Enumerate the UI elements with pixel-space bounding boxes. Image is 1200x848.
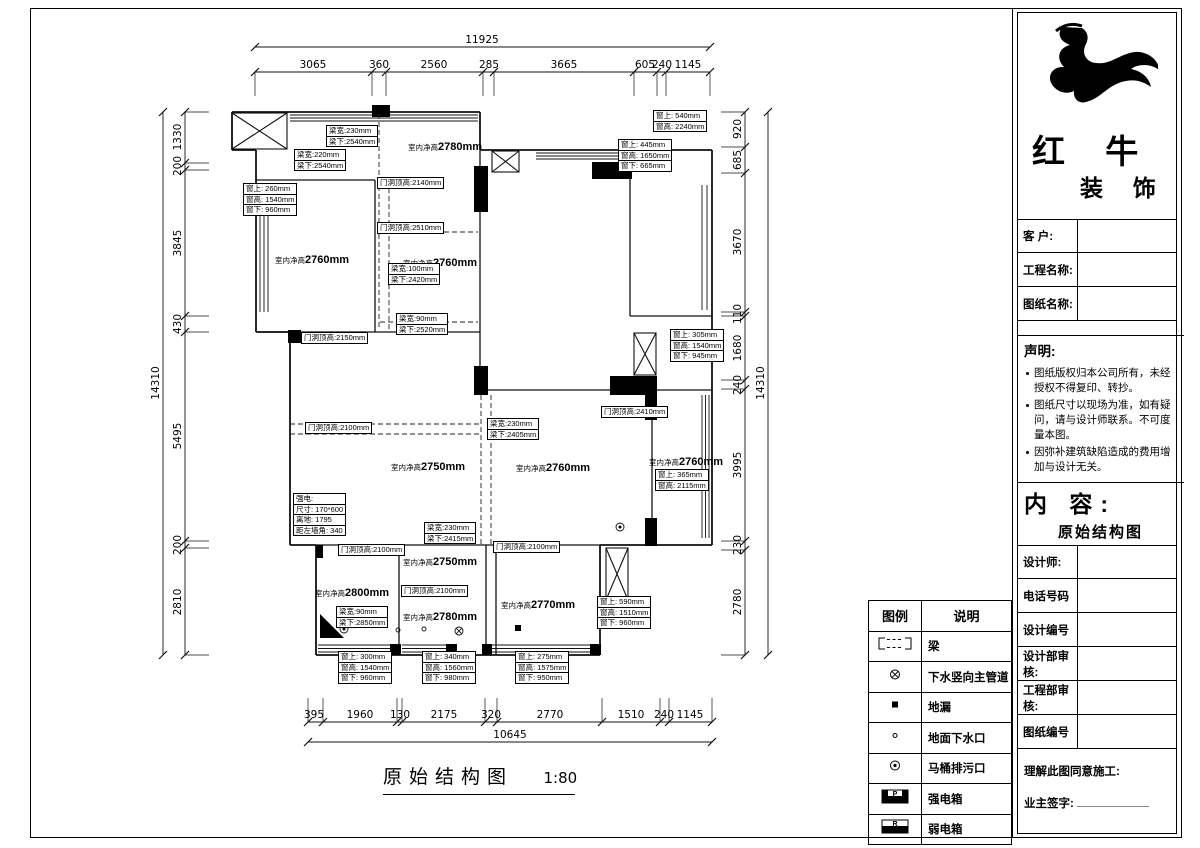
row-label: 设计部审核: <box>1018 647 1078 680</box>
dimension-label: 3065 <box>300 59 327 71</box>
dimension-label: 110 <box>732 304 744 324</box>
content-block: 内 容: 原始结构图 <box>1018 481 1176 546</box>
title-block-row: 工程名称: <box>1018 253 1176 287</box>
floor-drain-icon <box>869 692 922 723</box>
approve-block: 理解此图同意施工: 业主签字: <box>1018 749 1176 835</box>
signature-line <box>1077 796 1149 807</box>
statement-items: 图纸版权归本公司所有，未经授权不得复印、转抄。图纸尺寸以现场为准，如有疑问，请与… <box>1024 366 1180 475</box>
legend-label: 地漏 <box>922 692 1012 723</box>
title-block-row: 电话号码 <box>1018 579 1176 613</box>
title-block: 红 牛 装 饰 客 户:工程名称:图纸名称: 声明: 图纸版权归本公司所有，未经… <box>1012 8 1182 838</box>
legend-label: 强电箱 <box>922 784 1012 815</box>
dimension-label: 1145 <box>675 59 702 71</box>
info-rows: 设计师:电话号码设计编号设计部审核:工程部审核:图纸编号 <box>1018 545 1176 749</box>
dimension-label: 1330 <box>172 124 184 151</box>
dimension-label: 240 <box>652 59 672 71</box>
dimension-label: 1960 <box>347 709 374 721</box>
statement-item: 因弥补建筑缺陷造成的费用增加与设计无关。 <box>1024 445 1180 474</box>
row-label: 设计师: <box>1018 545 1078 578</box>
dimension-label: 2175 <box>431 709 458 721</box>
legend-row: 马桶排污口 <box>869 753 1012 784</box>
dimension-label: 1145 <box>677 709 704 721</box>
row-label: 设计编号 <box>1018 613 1078 646</box>
dimension-line: 11925 <box>251 34 714 51</box>
dimension-label: 3845 <box>172 230 184 257</box>
statement-item: 图纸尺寸以现场为准，如有疑问，请与设计师联系。不可度量本图。 <box>1024 398 1180 442</box>
legend-label: 梁 <box>922 631 1012 662</box>
beam-dashed-lines <box>290 114 491 545</box>
ground-outlet-icon <box>869 723 922 754</box>
legend-label: 弱电箱 <box>922 814 1012 845</box>
dimension-line: 14310 <box>755 108 772 659</box>
content-value: 原始结构图 <box>1058 521 1176 542</box>
legend-row: 地漏 <box>869 692 1012 723</box>
dimension-line: 3065360256028536656052401145 <box>251 59 714 96</box>
dimension-label: 14310 <box>150 366 162 399</box>
dimension-label: 11925 <box>465 34 498 46</box>
dimension-line: 14310 <box>150 108 167 659</box>
title-block-row: 设计部审核: <box>1018 647 1176 681</box>
dimension-line: 9206853670110168024039952302780 <box>721 108 749 659</box>
row-label: 电话号码 <box>1018 579 1078 612</box>
legend-row: P强电箱 <box>869 784 1012 815</box>
dimension-line: 10645 <box>304 729 716 746</box>
weak-box-icon: R <box>869 814 922 845</box>
dimension-label: 200 <box>172 156 184 176</box>
main-pipe-icon <box>869 662 922 693</box>
row-label: 图纸名称: <box>1018 287 1078 320</box>
interior-walls <box>256 150 712 655</box>
legend-row: 地面下水口 <box>869 723 1012 754</box>
dimension-label: 2770 <box>537 709 564 721</box>
dimension-label: 320 <box>481 709 501 721</box>
row-label: 图纸编号 <box>1018 715 1078 748</box>
legend-header-desc: 说明 <box>922 601 1012 632</box>
row-label: 工程部审核: <box>1018 681 1078 714</box>
brand-subname: 装 饰 <box>1080 169 1168 203</box>
row-label: 工程名称: <box>1018 253 1078 286</box>
beam-icon <box>869 631 922 662</box>
dimension-label: 1510 <box>618 709 645 721</box>
title-block-row: 设计编号 <box>1018 613 1176 647</box>
title-underline <box>383 794 575 795</box>
legend-label: 下水竖向主管道 <box>922 662 1012 693</box>
dimension-label: 395 <box>304 709 324 721</box>
dimension-label: 920 <box>732 119 744 139</box>
brand-name: 红 牛 <box>1032 125 1154 173</box>
dimension-label: 10645 <box>493 729 526 741</box>
title-block-row: 设计师: <box>1018 545 1176 579</box>
dimension-label: 130 <box>390 709 410 721</box>
dimension-label: 5495 <box>172 423 184 450</box>
svg-text:P: P <box>893 791 898 798</box>
wall-columns <box>288 105 657 655</box>
drawing-title: 原始结构图 1:80 <box>383 762 583 795</box>
statement-item: 图纸版权归本公司所有，未经授权不得复印、转抄。 <box>1024 366 1180 395</box>
floor-symbols <box>340 523 624 635</box>
approve-line: 理解此图同意施工: <box>1024 763 1176 779</box>
row-label: 客 户: <box>1018 219 1078 252</box>
legend-label: 地面下水口 <box>922 723 1012 754</box>
dimension-label: 14310 <box>755 366 767 399</box>
drawing-scale: 1:80 <box>543 769 577 787</box>
statement-block: 声明: 图纸版权归本公司所有，未经授权不得复印、转抄。图纸尺寸以现场为准，如有疑… <box>1018 335 1184 483</box>
owner-sign-label: 业主签字: <box>1024 798 1074 810</box>
legend-label: 马桶排污口 <box>922 753 1012 784</box>
title-block-row: 图纸名称: <box>1018 287 1176 321</box>
title-block-inner: 红 牛 装 饰 客 户:工程名称:图纸名称: 声明: 图纸版权归本公司所有，未经… <box>1017 12 1177 834</box>
dimension-label: 2560 <box>421 59 448 71</box>
company-logo: 红 牛 装 饰 <box>1018 13 1176 220</box>
bull-logo-icon <box>1036 21 1158 125</box>
statement-title: 声明: <box>1024 340 1180 360</box>
dimension-label: 2810 <box>172 589 184 616</box>
dimension-label: 360 <box>369 59 389 71</box>
dimension-label: 430 <box>172 314 184 334</box>
title-fields: 客 户:工程名称:图纸名称: <box>1018 219 1176 321</box>
legend-row: 梁 <box>869 631 1012 662</box>
power-box-icon: P <box>869 784 922 815</box>
dimension-label: 3665 <box>551 59 578 71</box>
shaft-boxes <box>232 113 656 600</box>
drawing-title-text: 原始结构图 <box>383 767 513 788</box>
dimension-line: 39519601302175320277015102401145 <box>304 698 716 726</box>
dimension-label: 230 <box>732 535 744 555</box>
title-block-row: 图纸编号 <box>1018 715 1176 749</box>
dimension-label: 285 <box>479 59 499 71</box>
dimension-label: 2780 <box>732 589 744 616</box>
legend-row: 下水竖向主管道 <box>869 662 1012 693</box>
content-label: 内 容: <box>1024 485 1176 519</box>
dimension-label: 240 <box>732 375 744 395</box>
dimension-label: 200 <box>172 535 184 555</box>
dimension-label: 3995 <box>732 452 744 479</box>
toilet-outlet-icon <box>869 753 922 784</box>
owner-sign-line: 业主签字: <box>1024 795 1176 811</box>
title-block-row: 客 户: <box>1018 219 1176 253</box>
legend-row: R弱电箱 <box>869 814 1012 845</box>
dimension-label: 685 <box>732 150 744 170</box>
svg-text:R: R <box>892 821 897 828</box>
dimension-label: 240 <box>654 709 674 721</box>
dimension-label: 1680 <box>732 335 744 362</box>
title-block-row: 工程部审核: <box>1018 681 1176 715</box>
dimension-label: 3670 <box>732 229 744 256</box>
dimension-line: 1330200384543054952002810 <box>172 108 209 659</box>
legend-table: 图例 说明 梁下水竖向主管道地漏地面下水口马桶排污口P强电箱R弱电箱 <box>868 600 1012 845</box>
legend-header-symbol: 图例 <box>869 601 922 632</box>
